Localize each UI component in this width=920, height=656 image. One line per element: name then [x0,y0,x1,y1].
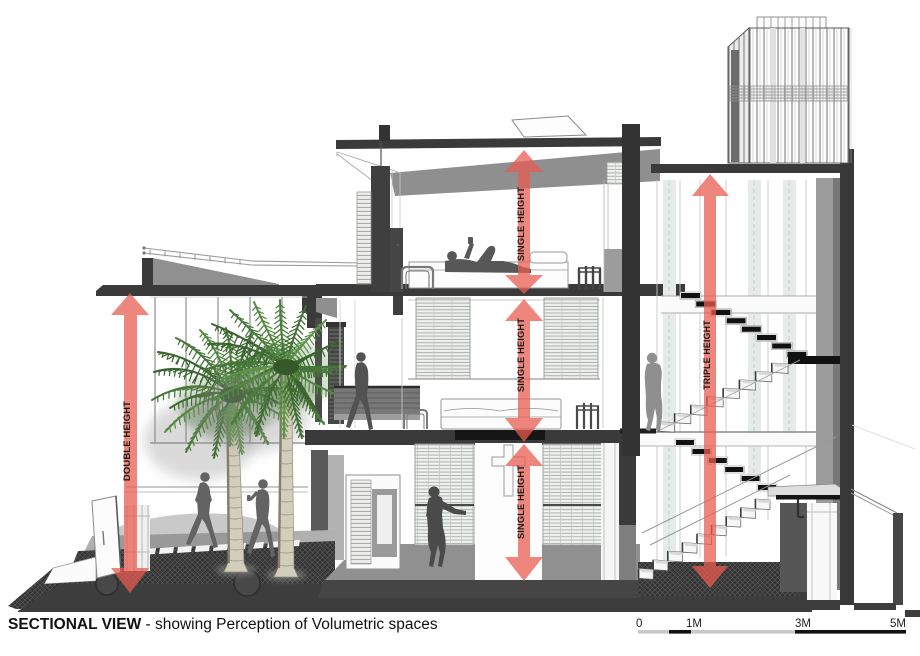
svg-text:SINGLE HEIGHT: SINGLE HEIGHT [516,318,526,392]
svg-text:SINGLE HEIGHT: SINGLE HEIGHT [516,187,526,261]
svg-text:5M: 5M [890,618,906,630]
svg-text:0: 0 [636,618,642,630]
svg-text:TRIPLE HEIGHT: TRIPLE HEIGHT [702,320,712,390]
svg-text:3M: 3M [795,618,811,630]
svg-text:SINGLE HEIGHT: SINGLE HEIGHT [516,465,526,539]
svg-text:DOUBLE HEIGHT: DOUBLE HEIGHT [121,401,132,481]
svg-text:1M: 1M [686,618,702,630]
svg-text:SECTIONAL VIEW - showing Perce: SECTIONAL VIEW - showing Perception of V… [8,616,438,633]
